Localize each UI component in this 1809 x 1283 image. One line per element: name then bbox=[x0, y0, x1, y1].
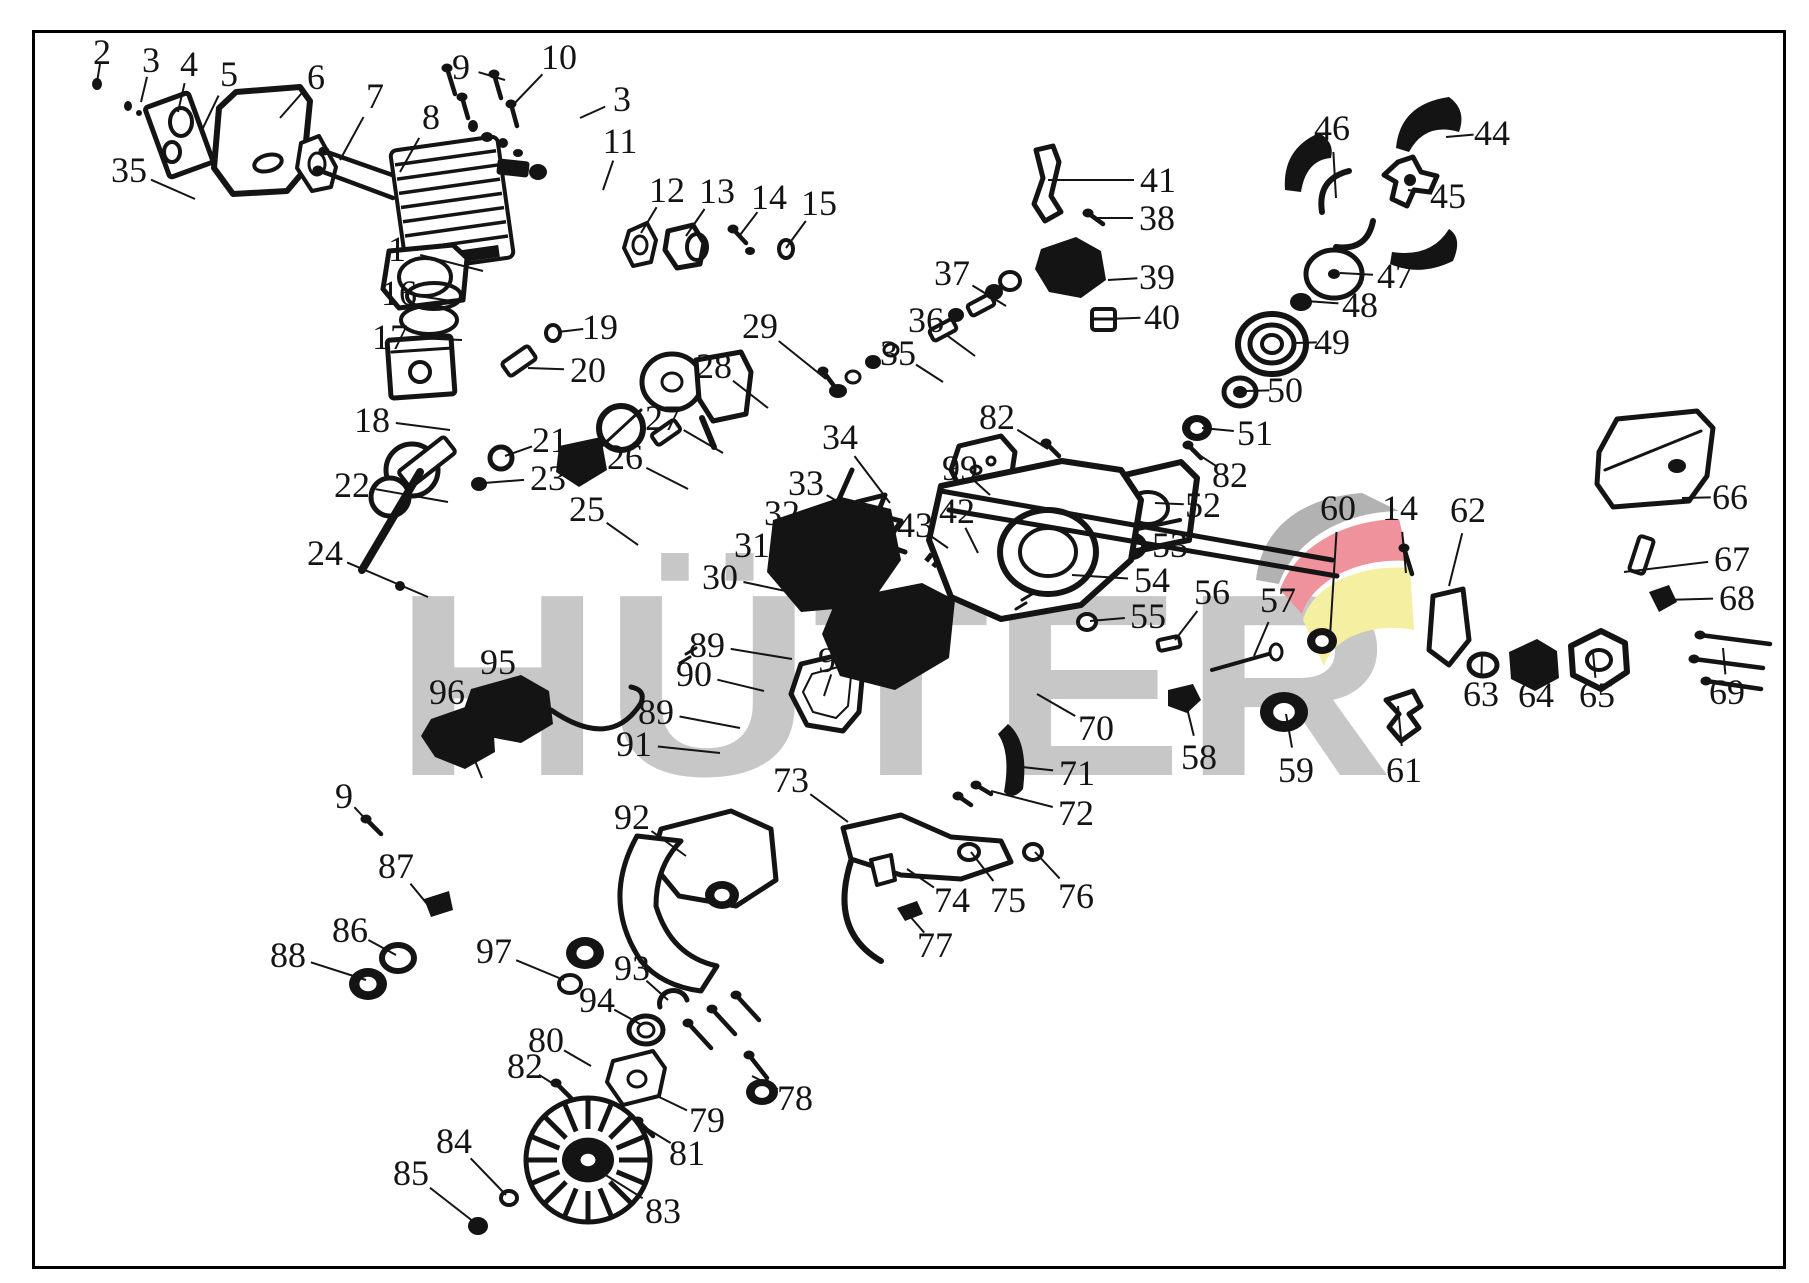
callout-66: 66 bbox=[1712, 477, 1748, 517]
callout-83: 83 bbox=[645, 1191, 681, 1231]
callout-94: 94 bbox=[579, 980, 615, 1020]
screw-78d-head bbox=[744, 1051, 755, 1060]
callout-90: 90 bbox=[676, 654, 712, 694]
washer-10e bbox=[498, 138, 508, 148]
stud-8a-head bbox=[319, 147, 330, 156]
callout-63: 63 bbox=[1463, 674, 1499, 714]
callout-49: 49 bbox=[1314, 322, 1350, 362]
callout-41: 41 bbox=[1140, 160, 1176, 200]
callout-92: 92 bbox=[614, 797, 650, 837]
leader-line-23 bbox=[484, 480, 524, 483]
callout-34: 34 bbox=[822, 417, 858, 457]
oring-97 bbox=[559, 975, 581, 993]
spring-46b bbox=[1336, 221, 1373, 247]
screw-78a bbox=[688, 1023, 711, 1048]
callout-40: 40 bbox=[1144, 297, 1180, 337]
callout-8: 8 bbox=[422, 97, 440, 137]
callout-19: 19 bbox=[582, 307, 618, 347]
flywheel-83-hub-hole bbox=[581, 1154, 596, 1166]
washer-10f bbox=[513, 149, 523, 157]
leader-line-52 bbox=[1155, 503, 1184, 504]
callout-99: 99 bbox=[942, 448, 978, 488]
callout-38: 38 bbox=[1139, 198, 1175, 238]
callout-13: 13 bbox=[699, 171, 735, 211]
nut-14a bbox=[745, 247, 755, 255]
leader-line-10 bbox=[512, 74, 542, 106]
leader-line-68 bbox=[1664, 599, 1713, 600]
callout-46: 46 bbox=[1314, 108, 1350, 148]
leader-line-18 bbox=[396, 423, 450, 430]
leader-line-87 bbox=[410, 884, 432, 910]
leader-line-66 bbox=[1682, 497, 1711, 498]
leader-line-39 bbox=[1108, 278, 1137, 280]
leader-line-3 bbox=[580, 107, 605, 118]
callout-20: 20 bbox=[570, 350, 606, 390]
callout-97: 97 bbox=[476, 931, 512, 971]
callout-48: 48 bbox=[1342, 285, 1378, 325]
callout-72: 72 bbox=[1058, 793, 1094, 833]
callout-98: 98 bbox=[818, 640, 854, 680]
callout-2: 2 bbox=[93, 32, 111, 72]
washer-10d bbox=[481, 132, 493, 142]
washer-10c bbox=[468, 120, 478, 132]
screw-78b bbox=[712, 1009, 735, 1034]
leader-line-69 bbox=[1723, 648, 1725, 674]
leader-line-46 bbox=[1333, 152, 1336, 198]
gasket-62 bbox=[1429, 589, 1469, 665]
callout-14: 14 bbox=[751, 177, 787, 217]
leader-line-29 bbox=[779, 341, 826, 379]
callout-10: 10 bbox=[541, 37, 577, 77]
callout-5: 5 bbox=[220, 54, 238, 94]
callout-11: 11 bbox=[603, 121, 638, 161]
callout-36: 36 bbox=[908, 300, 944, 340]
callout-96: 96 bbox=[429, 672, 465, 712]
leader-line-20 bbox=[528, 368, 564, 369]
callout-82: 82 bbox=[1212, 455, 1248, 495]
callout-61: 61 bbox=[1386, 750, 1422, 790]
stud-8b-head bbox=[313, 166, 324, 175]
callout-17: 17 bbox=[372, 317, 408, 357]
callout-54: 54 bbox=[1134, 560, 1170, 600]
screw-10a-head bbox=[457, 93, 468, 102]
callout-3: 3 bbox=[613, 79, 631, 119]
screw-69a-head bbox=[1695, 631, 1706, 640]
leader-line-35 bbox=[151, 180, 195, 199]
brake-lever-41 bbox=[1034, 146, 1061, 221]
callout-84: 84 bbox=[436, 1121, 472, 1161]
callout-55: 55 bbox=[1130, 596, 1166, 636]
callout-82: 82 bbox=[507, 1046, 543, 1086]
plug-11-tip bbox=[529, 164, 547, 180]
chain-35b bbox=[846, 371, 860, 383]
callout-47: 47 bbox=[1377, 256, 1413, 296]
callout-64: 64 bbox=[1518, 675, 1554, 715]
callout-53: 53 bbox=[1152, 525, 1188, 565]
callout-12: 12 bbox=[649, 170, 685, 210]
muffler-cover-6 bbox=[214, 87, 310, 194]
washer-47-hole bbox=[1328, 269, 1340, 279]
chain-37a bbox=[948, 308, 964, 322]
callout-9: 9 bbox=[335, 776, 353, 816]
callout-62: 62 bbox=[1450, 490, 1486, 530]
callout-4: 4 bbox=[180, 44, 198, 84]
callout-22: 22 bbox=[334, 465, 370, 505]
callout-37: 37 bbox=[934, 253, 970, 293]
leader-line-15 bbox=[786, 221, 806, 248]
callout-15: 15 bbox=[801, 183, 837, 223]
circlip-19 bbox=[546, 325, 560, 341]
leader-line-50 bbox=[1246, 390, 1269, 391]
leader-line-79 bbox=[657, 1096, 687, 1110]
screw-78c bbox=[736, 995, 759, 1020]
grommet-68 bbox=[1649, 585, 1677, 612]
leader-line-11 bbox=[603, 161, 613, 190]
callout-9: 9 bbox=[452, 47, 470, 87]
pin-20 bbox=[501, 345, 536, 376]
callout-18: 18 bbox=[354, 400, 390, 440]
leader-line-84 bbox=[471, 1158, 506, 1195]
exploded-parts-diagram: HÜTER 2345678910311121314151617181920212… bbox=[0, 0, 1809, 1283]
hub-45-center bbox=[1404, 174, 1416, 186]
clip-77 bbox=[897, 901, 923, 921]
leader-line-62 bbox=[1449, 533, 1462, 586]
chain-35a bbox=[829, 384, 847, 398]
callout-35: 35 bbox=[111, 150, 147, 190]
callout-3: 3 bbox=[142, 40, 160, 80]
diagram-canvas: HÜTER 2345678910311121314151617181920212… bbox=[0, 0, 1809, 1283]
leader-line-3 bbox=[141, 77, 147, 102]
oil-tank-66 bbox=[1597, 411, 1713, 507]
circlip-93 bbox=[659, 990, 687, 1007]
callout-86: 86 bbox=[332, 910, 368, 950]
callout-21: 21 bbox=[532, 420, 568, 460]
chain-37d bbox=[1000, 272, 1020, 290]
callout-51: 51 bbox=[1237, 413, 1273, 453]
callout-6: 6 bbox=[307, 57, 325, 97]
callout-44: 44 bbox=[1474, 113, 1510, 153]
callout-42: 42 bbox=[939, 491, 975, 531]
callout-43: 43 bbox=[897, 505, 933, 545]
washer-3b bbox=[136, 110, 142, 116]
callout-24: 24 bbox=[307, 533, 343, 573]
leader-line-85 bbox=[430, 1188, 474, 1222]
callout-26: 26 bbox=[607, 437, 643, 477]
oil-seal-60-core bbox=[1315, 635, 1329, 647]
leader-line-35 bbox=[916, 365, 943, 382]
leader-line-76 bbox=[1035, 852, 1060, 878]
callout-57: 57 bbox=[1260, 580, 1296, 620]
callout-39: 39 bbox=[1139, 257, 1175, 297]
leader-line-80 bbox=[564, 1050, 591, 1066]
leader-line-26 bbox=[646, 468, 688, 489]
ring-63 bbox=[1469, 654, 1497, 676]
callout-67: 67 bbox=[1714, 539, 1750, 579]
washer-3a bbox=[124, 101, 132, 111]
spark-plug-11 bbox=[496, 158, 529, 177]
callout-87: 87 bbox=[378, 846, 414, 886]
clutch-drum-59-core bbox=[1273, 703, 1295, 721]
callout-58: 58 bbox=[1181, 737, 1217, 777]
parts-layer bbox=[92, 64, 1770, 1236]
callout-74: 74 bbox=[934, 880, 970, 920]
screw-72b-head bbox=[953, 792, 964, 801]
callout-73: 73 bbox=[773, 760, 809, 800]
screw-38-head bbox=[1083, 209, 1094, 218]
screw-14a-head bbox=[728, 225, 739, 234]
chain-36a bbox=[865, 355, 881, 369]
callout-81: 81 bbox=[669, 1133, 705, 1173]
rod-57-end bbox=[1270, 644, 1282, 660]
callout-56: 56 bbox=[1194, 572, 1230, 612]
callout-88: 88 bbox=[270, 935, 306, 975]
screw-69b-head bbox=[1689, 655, 1700, 664]
bushing-51-core bbox=[1190, 422, 1204, 434]
screw-78a-head bbox=[683, 1019, 694, 1028]
screw-72a-head bbox=[971, 781, 982, 790]
gasket-12 bbox=[624, 223, 656, 266]
callout-45: 45 bbox=[1430, 176, 1466, 216]
pawl-44a bbox=[1396, 97, 1461, 152]
bearing-c-core bbox=[755, 1086, 769, 1098]
screw-82b-head bbox=[1183, 441, 1194, 450]
callout-50: 50 bbox=[1267, 370, 1303, 410]
screw-69a bbox=[1700, 635, 1770, 644]
callout-69: 69 bbox=[1709, 672, 1745, 712]
callout-16: 16 bbox=[381, 273, 417, 313]
callout-7: 7 bbox=[366, 76, 384, 116]
callout-60: 60 bbox=[1320, 488, 1356, 528]
bearing-21 bbox=[490, 447, 512, 469]
leader-line-19 bbox=[558, 329, 583, 332]
gasket-79 bbox=[607, 1051, 665, 1105]
callout-85: 85 bbox=[393, 1153, 429, 1193]
callout-70: 70 bbox=[1078, 708, 1114, 748]
key-23 bbox=[471, 477, 487, 491]
flange-50-core bbox=[1233, 386, 1247, 398]
callout-91: 91 bbox=[616, 724, 652, 764]
callout-78: 78 bbox=[777, 1078, 813, 1118]
callout-95: 95 bbox=[480, 642, 516, 682]
callout-28: 28 bbox=[696, 346, 732, 386]
callout-76: 76 bbox=[1058, 876, 1094, 916]
bearing-a-core bbox=[576, 946, 593, 960]
leader-line-40 bbox=[1108, 318, 1140, 319]
callout-68: 68 bbox=[1719, 578, 1755, 618]
screw-78b-head bbox=[707, 1005, 718, 1014]
callout-93: 93 bbox=[614, 948, 650, 988]
screw-9a-head bbox=[442, 64, 453, 73]
leader-line-27 bbox=[684, 430, 723, 453]
trigger-73 bbox=[871, 855, 895, 885]
callout-71: 71 bbox=[1059, 753, 1095, 793]
callout-27: 27 bbox=[645, 398, 681, 438]
leader-line-36 bbox=[945, 334, 975, 356]
callout-75: 75 bbox=[990, 880, 1026, 920]
callout-1: 1 bbox=[388, 229, 406, 269]
leader-line-7 bbox=[340, 117, 363, 160]
callout-65: 65 bbox=[1579, 675, 1615, 715]
bearing-b-core bbox=[714, 889, 729, 902]
callout-82: 82 bbox=[979, 397, 1015, 437]
callout-33: 33 bbox=[788, 463, 824, 503]
callout-14: 14 bbox=[1382, 488, 1418, 528]
screw-69b bbox=[1694, 659, 1763, 668]
muffler-gasket-7 bbox=[297, 136, 336, 191]
oiler-39 bbox=[1035, 237, 1106, 298]
callout-30: 30 bbox=[702, 557, 738, 597]
nut-55 bbox=[1078, 614, 1096, 630]
callout-29: 29 bbox=[742, 306, 778, 346]
leader-line-44 bbox=[1446, 135, 1474, 137]
bearing-94-inner bbox=[638, 1023, 654, 1037]
leader-line-97 bbox=[516, 960, 564, 980]
callout-23: 23 bbox=[530, 458, 566, 498]
callout-77: 77 bbox=[917, 925, 953, 965]
callout-59: 59 bbox=[1278, 750, 1314, 790]
callout-25: 25 bbox=[569, 489, 605, 529]
screw-78c-head bbox=[731, 991, 742, 1000]
tank-66-cap bbox=[1668, 459, 1686, 473]
